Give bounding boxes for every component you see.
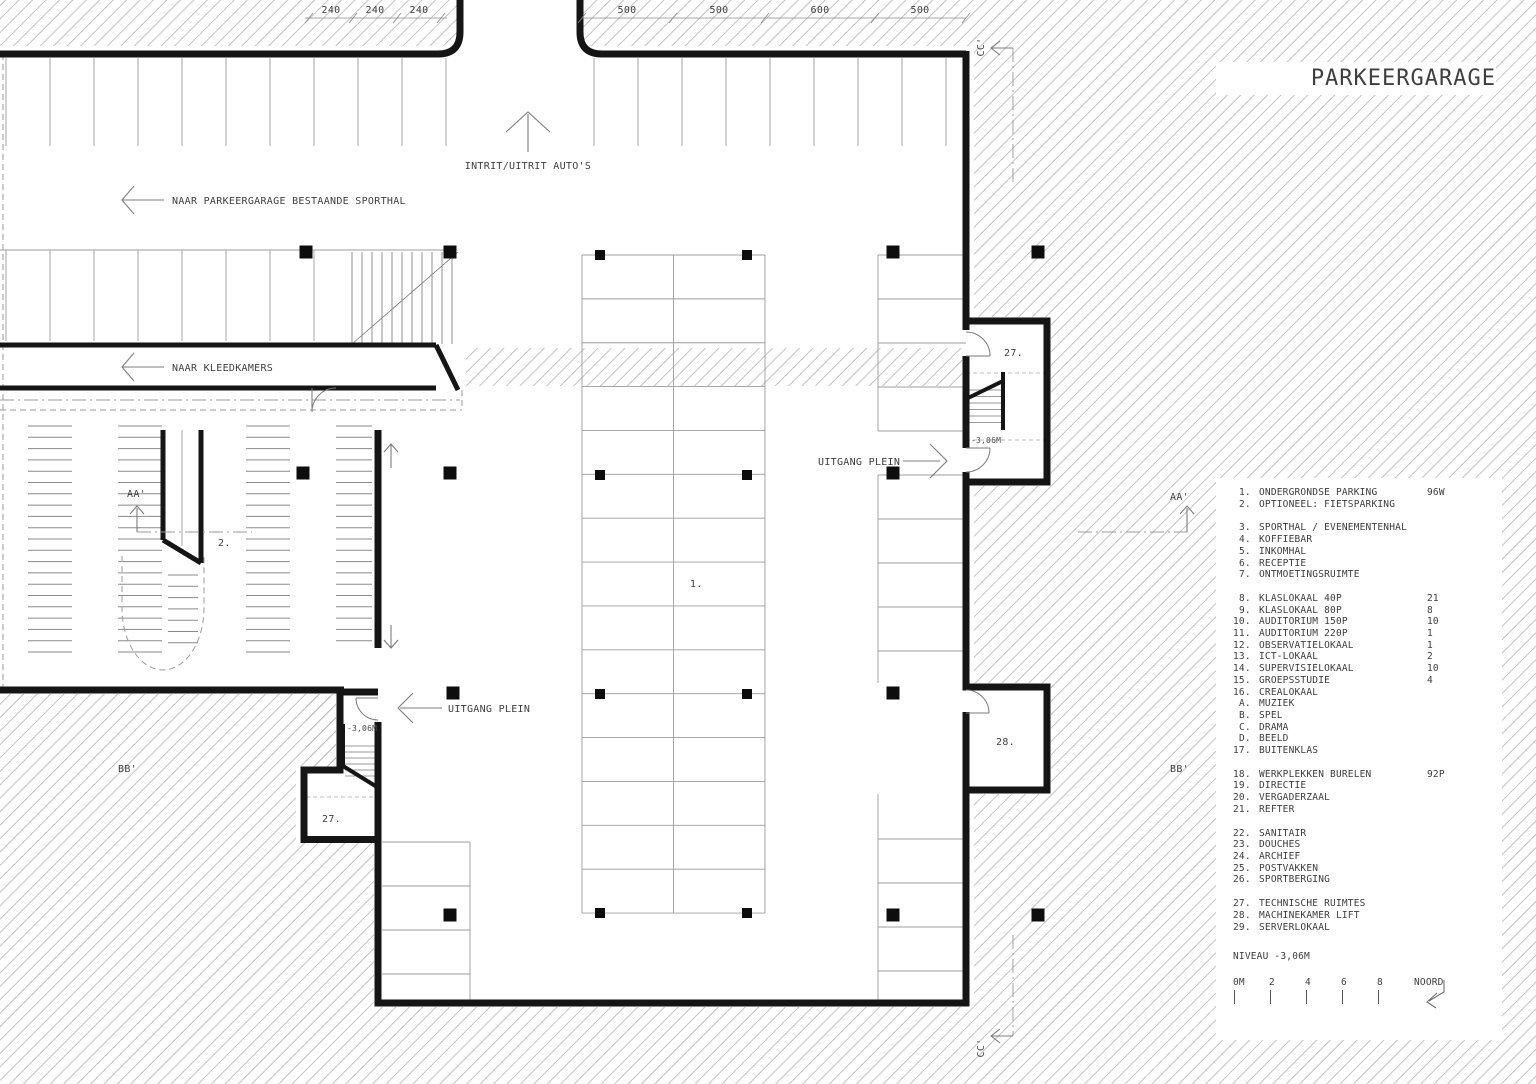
legend-item: 27.TECHNISCHE RUIMTES [1233, 898, 1477, 910]
legend-item-label: KLASLOKAAL 80P [1259, 605, 1427, 617]
legend-item-label: VERGADERZAAL [1259, 792, 1427, 804]
legend-item-label: ARCHIEF [1259, 851, 1427, 863]
room-27-right-label: 27. [1004, 348, 1023, 359]
legend-item-value [1427, 922, 1477, 934]
column [742, 470, 752, 480]
column [887, 909, 900, 922]
legend-item-value [1427, 558, 1477, 570]
legend-item-value [1427, 687, 1477, 699]
column [595, 250, 605, 260]
legend-item-value [1427, 733, 1477, 745]
legend-item-number: C. [1233, 722, 1259, 734]
legend-item-value [1427, 839, 1477, 851]
level-label-left: -3,06M [347, 724, 377, 733]
section-bb-left: BB' [118, 764, 137, 775]
legend-item-number: 19. [1233, 780, 1259, 792]
legend-item: B.SPEL [1233, 710, 1477, 722]
legend-item-number: 14. [1233, 663, 1259, 675]
dim-left-3: 240 [410, 5, 429, 16]
legend-item: 1.ONDERGRONDSE PARKING96W [1233, 487, 1477, 499]
legend-item: 7.ONTMOETINGSRUIMTE [1233, 569, 1477, 581]
legend-item-label: TECHNISCHE RUIMTES [1259, 898, 1427, 910]
legend-item-number: 28. [1233, 910, 1259, 922]
legend-item: 24.ARCHIEF [1233, 851, 1477, 863]
legend-item-value [1427, 910, 1477, 922]
legend-item-value [1427, 851, 1477, 863]
dim-right-4: 500 [911, 5, 930, 16]
legend-item: 21.REFTER [1233, 804, 1477, 816]
legend-item-value [1427, 804, 1477, 816]
legend-item-label: BEELD [1259, 733, 1427, 745]
uitgang-plein-left-label: UITGANG PLEIN [448, 704, 530, 715]
scale-tick-mark [1306, 990, 1307, 1004]
legend-item: 20.VERGADERZAAL [1233, 792, 1477, 804]
legend-item-label: ONDERGRONDSE PARKING [1259, 487, 1427, 499]
legend-item-value [1427, 874, 1477, 886]
legend-item-value [1427, 722, 1477, 734]
legend-item-value: 1 [1427, 628, 1477, 640]
legend-item-number: 16. [1233, 687, 1259, 699]
section-cc-top: CC' [976, 38, 987, 57]
scale-tick: 6 [1341, 977, 1377, 1004]
legend-items: 1.ONDERGRONDSE PARKING96W2.OPTIONEEL: FI… [1233, 487, 1477, 933]
legend-item-number: 10. [1233, 616, 1259, 628]
legend-item-label: MUZIEK [1259, 698, 1427, 710]
page-title: PARKEERGARAGE [1311, 66, 1496, 91]
legend-item-label: REFTER [1259, 804, 1427, 816]
legend-item-value: 8 [1427, 605, 1477, 617]
legend-item: 10.AUDITORIUM 150P10 [1233, 616, 1477, 628]
scale-tick-label: 6 [1341, 977, 1377, 988]
dim-left-1: 240 [322, 5, 341, 16]
legend-item-value: 1 [1427, 640, 1477, 652]
legend-item-value: 92P [1427, 769, 1477, 781]
scale-tick: 2 [1269, 977, 1305, 1004]
legend-item-value [1427, 569, 1477, 581]
legend-item-number: 15. [1233, 675, 1259, 687]
room-27-left-label: 27. [322, 814, 341, 825]
legend-item-value: 2 [1427, 651, 1477, 663]
column [444, 246, 457, 259]
legend-item: 23.DOUCHES [1233, 839, 1477, 851]
legend-group: 3.SPORTHAL / EVENEMENTENHAL4.KOFFIEBAR5.… [1233, 522, 1477, 581]
legend-item-value [1427, 780, 1477, 792]
legend-panel: 1.ONDERGRONDSE PARKING96W2.OPTIONEEL: FI… [1216, 478, 1502, 1040]
legend-item: 29.SERVERLOKAAL [1233, 922, 1477, 934]
column [595, 908, 605, 918]
column [1032, 909, 1045, 922]
parking-garage-drawing: INTRIT/UITRIT AUTO'S NAAR PARKEERGARAGE … [0, 0, 1536, 1084]
legend-group: 8.KLASLOKAAL 40P219.KLASLOKAAL 80P810.AU… [1233, 593, 1477, 757]
legend-item: 9.KLASLOKAAL 80P8 [1233, 605, 1477, 617]
legend-item-number: 18. [1233, 769, 1259, 781]
legend-item: 18.WERKPLEKKEN BURELEN92P [1233, 769, 1477, 781]
legend-item-value [1427, 710, 1477, 722]
legend-item-number: 27. [1233, 898, 1259, 910]
legend-item: 8.KLASLOKAAL 40P21 [1233, 593, 1477, 605]
legend-item-value: 21 [1427, 593, 1477, 605]
legend-item: 11.AUDITORIUM 220P1 [1233, 628, 1477, 640]
drawing-title-strip: PARKEERGARAGE [1216, 62, 1496, 95]
legend-item-value [1427, 499, 1477, 511]
column [595, 689, 605, 699]
column [447, 687, 460, 700]
legend-item-number: 25. [1233, 863, 1259, 875]
column [1032, 246, 1045, 259]
room-28-label: 28. [996, 737, 1015, 748]
north-arrow-icon [1414, 977, 1456, 1011]
legend-item: 5.INKOMHAL [1233, 546, 1477, 558]
legend-item-number: 23. [1233, 839, 1259, 851]
legend-item-number: D. [1233, 733, 1259, 745]
scale-tick-mark [1270, 990, 1271, 1004]
legend-item-number: 13. [1233, 651, 1259, 663]
legend-item: A.MUZIEK [1233, 698, 1477, 710]
legend-item-label: SERVERLOKAAL [1259, 922, 1427, 934]
legend-item-number: 9. [1233, 605, 1259, 617]
legend-item-label: SPEL [1259, 710, 1427, 722]
legend-item-label: KLASLOKAAL 40P [1259, 593, 1427, 605]
scale-tick: 4 [1305, 977, 1341, 1004]
legend-item-value [1427, 534, 1477, 546]
level-label-right: -3,06M [971, 436, 1001, 445]
legend-item-label: DRAMA [1259, 722, 1427, 734]
scale-tick-mark [1378, 990, 1379, 1004]
level-note: NIVEAU -3,06M [1233, 951, 1477, 963]
legend-item-number: 21. [1233, 804, 1259, 816]
column [887, 246, 900, 259]
legend-item: 15.GROEPSSTUDIE4 [1233, 675, 1477, 687]
legend-item-value [1427, 863, 1477, 875]
scale-tick-label: 2 [1269, 977, 1305, 988]
legend-item-number: 2. [1233, 499, 1259, 511]
legend-item-number: 22. [1233, 828, 1259, 840]
column [300, 246, 313, 259]
legend-item: 12.OBSERVATIELOKAAL1 [1233, 640, 1477, 652]
legend-item: 2.OPTIONEEL: FIETSPARKING [1233, 499, 1477, 511]
legend-item-label: SPORTBERGING [1259, 874, 1427, 886]
scale-bar: 0M2468NOORD [1233, 977, 1477, 1004]
legend-item-number: B. [1233, 710, 1259, 722]
legend-item-label: KOFFIEBAR [1259, 534, 1427, 546]
scale-tick-label: 4 [1305, 977, 1341, 988]
column [742, 689, 752, 699]
legend-item-number: 12. [1233, 640, 1259, 652]
legend-item-number: 20. [1233, 792, 1259, 804]
to-kleedkamers-label: NAAR KLEEDKAMERS [172, 363, 273, 374]
legend-item: D.BEELD [1233, 733, 1477, 745]
legend-item: 14.SUPERVISIELOKAAL10 [1233, 663, 1477, 675]
legend-item: 26.SPORTBERGING [1233, 874, 1477, 886]
legend-item-label: OPTIONEEL: FIETSPARKING [1259, 499, 1427, 511]
legend-item-value [1427, 698, 1477, 710]
scale-tick-label: 0M [1233, 977, 1269, 988]
legend-item-value [1427, 546, 1477, 558]
legend-item-label: WERKPLEKKEN BURELEN [1259, 769, 1427, 781]
scale-tick: 8 [1377, 977, 1413, 1004]
legend-item-number: 17. [1233, 745, 1259, 757]
legend-item-value: 4 [1427, 675, 1477, 687]
legend-item-value [1427, 745, 1477, 757]
legend-item-number: 11. [1233, 628, 1259, 640]
dim-left-2: 240 [366, 5, 385, 16]
legend-item-label: ONTMOETINGSRUIMTE [1259, 569, 1427, 581]
legend-item-value [1427, 792, 1477, 804]
legend-item-label: DIRECTIE [1259, 780, 1427, 792]
legend-item-number: A. [1233, 698, 1259, 710]
legend-item: 13.ICT-LOKAAL2 [1233, 651, 1477, 663]
legend-group: 18.WERKPLEKKEN BURELEN92P19.DIRECTIE20.V… [1233, 769, 1477, 816]
section-bb-right: BB' [1170, 764, 1189, 775]
legend-item-label: MACHINEKAMER LIFT [1259, 910, 1427, 922]
legend-item-label: SUPERVISIELOKAAL [1259, 663, 1427, 675]
legend-item: C.DRAMA [1233, 722, 1477, 734]
section-aa-left: AA' [127, 489, 146, 500]
scale-tick-mark [1234, 990, 1235, 1004]
column [444, 467, 457, 480]
legend-item-label: OBSERVATIELOKAAL [1259, 640, 1427, 652]
legend-item-number: 1. [1233, 487, 1259, 499]
legend-item-label: SANITAIR [1259, 828, 1427, 840]
legend-group: 22.SANITAIR23.DOUCHES24.ARCHIEF25.POSTVA… [1233, 828, 1477, 887]
legend-item: 22.SANITAIR [1233, 828, 1477, 840]
legend-item-label: BUITENKLAS [1259, 745, 1427, 757]
legend-item-label: DOUCHES [1259, 839, 1427, 851]
legend-item-number: 6. [1233, 558, 1259, 570]
legend-group: 27.TECHNISCHE RUIMTES28.MACHINEKAMER LIF… [1233, 898, 1477, 933]
uitgang-plein-right-label: UITGANG PLEIN [818, 457, 900, 468]
entrance-label: INTRIT/UITRIT AUTO'S [465, 161, 591, 172]
section-cc-bottom: CC' [976, 1039, 987, 1058]
legend-item-number: 26. [1233, 874, 1259, 886]
to-sporthal-label: NAAR PARKEERGARAGE BESTAANDE SPORTHAL [172, 196, 406, 207]
scale-tick: 0M [1233, 977, 1269, 1004]
legend-item-number: 5. [1233, 546, 1259, 558]
legend-item-value [1427, 522, 1477, 534]
legend-item-number: 8. [1233, 593, 1259, 605]
legend-item: 3.SPORTHAL / EVENEMENTENHAL [1233, 522, 1477, 534]
legend-item-number: 4. [1233, 534, 1259, 546]
legend-item: 28.MACHINEKAMER LIFT [1233, 910, 1477, 922]
column [444, 909, 457, 922]
legend-item-label: AUDITORIUM 220P [1259, 628, 1427, 640]
legend-item-label: POSTVAKKEN [1259, 863, 1427, 875]
legend-item-label: GROEPSSTUDIE [1259, 675, 1427, 687]
scale-tick-mark [1342, 990, 1343, 1004]
dim-right-2: 500 [710, 5, 729, 16]
legend-item: 4.KOFFIEBAR [1233, 534, 1477, 546]
column [742, 908, 752, 918]
column [887, 467, 900, 480]
north-indicator: NOORD [1414, 977, 1444, 988]
legend-item: 16.CREALOKAAL [1233, 687, 1477, 699]
legend-item-label: ICT-LOKAAL [1259, 651, 1427, 663]
column [595, 470, 605, 480]
legend-item-number: 24. [1233, 851, 1259, 863]
legend-item-label: INKOMHAL [1259, 546, 1427, 558]
legend-item-value: 10 [1427, 616, 1477, 628]
column [887, 687, 900, 700]
legend-item: 17.BUITENKLAS [1233, 745, 1477, 757]
legend-item-value: 96W [1427, 487, 1477, 499]
legend-item: 25.POSTVAKKEN [1233, 863, 1477, 875]
legend-item-value [1427, 898, 1477, 910]
legend-item-label: CREALOKAAL [1259, 687, 1427, 699]
dim-right-1: 500 [618, 5, 637, 16]
legend-item-value: 10 [1427, 663, 1477, 675]
legend-item-label: SPORTHAL / EVENEMENTENHAL [1259, 522, 1427, 534]
column [297, 467, 310, 480]
dim-right-3: 600 [811, 5, 830, 16]
room-1-label: 1. [690, 579, 703, 590]
legend-item-label: AUDITORIUM 150P [1259, 616, 1427, 628]
legend-item: 6.RECEPTIE [1233, 558, 1477, 570]
section-aa-right: AA' [1170, 492, 1189, 503]
legend-group: 1.ONDERGRONDSE PARKING96W2.OPTIONEEL: FI… [1233, 487, 1477, 510]
legend-item-number: 3. [1233, 522, 1259, 534]
room-2-label: 2. [218, 538, 231, 549]
legend-item-label: RECEPTIE [1259, 558, 1427, 570]
scale-tick-label: 8 [1377, 977, 1413, 988]
column [742, 250, 752, 260]
legend-item-number: 7. [1233, 569, 1259, 581]
stair-shaft-hatch [306, 696, 336, 768]
legend-item-value [1427, 828, 1477, 840]
legend-item: 19.DIRECTIE [1233, 780, 1477, 792]
legend-item-number: 29. [1233, 922, 1259, 934]
